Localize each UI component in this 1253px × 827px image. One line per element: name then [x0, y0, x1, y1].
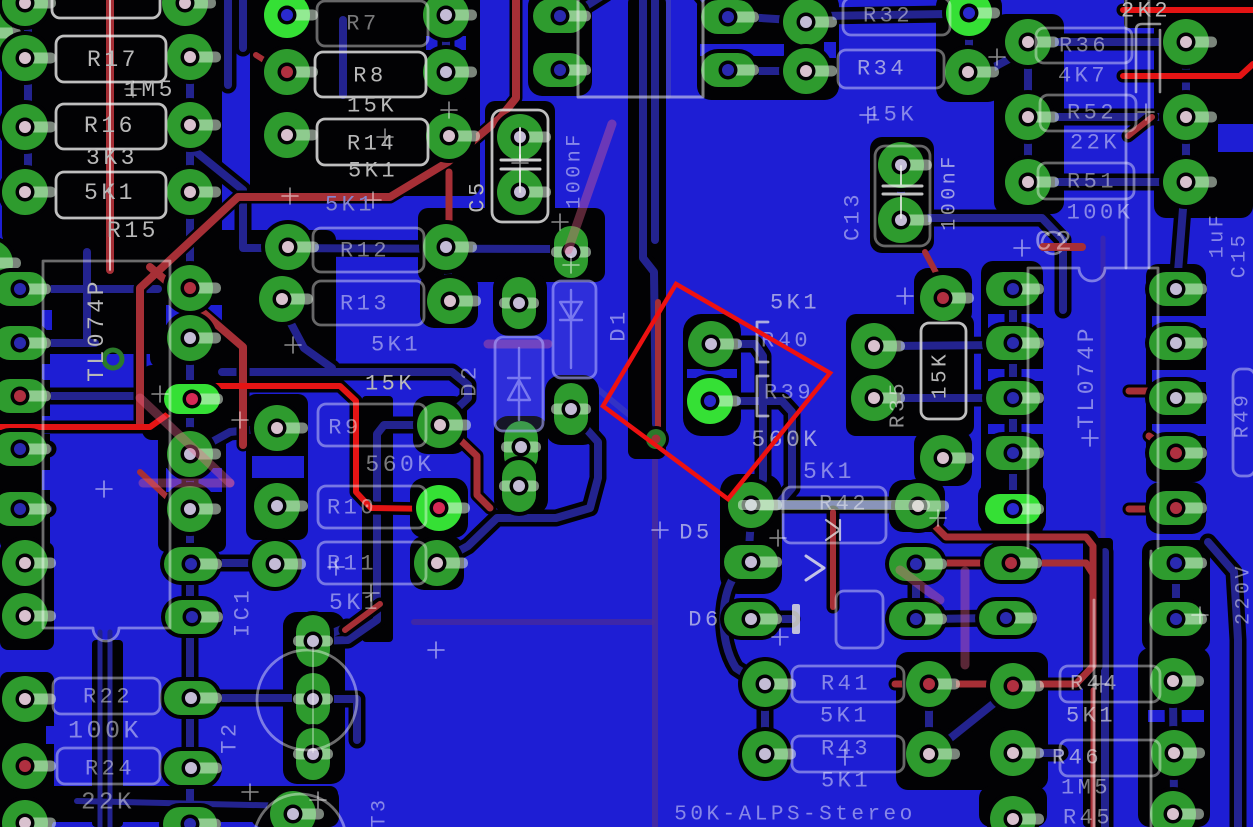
svg-text:1uF: 1uF: [1207, 212, 1230, 259]
svg-text:TL074P: TL074P: [1074, 325, 1100, 429]
svg-text:C15: C15: [1229, 232, 1252, 279]
svg-text:1M5: 1M5: [1061, 776, 1111, 801]
svg-text:5K1: 5K1: [1066, 704, 1116, 729]
svg-text:C2: C2: [1035, 228, 1076, 259]
svg-text:5K1: 5K1: [821, 769, 871, 794]
svg-text:R51: R51: [1067, 170, 1117, 195]
svg-text:15K: 15K: [867, 103, 917, 128]
svg-text:R15: R15: [107, 218, 159, 244]
svg-text:R12: R12: [340, 239, 390, 264]
svg-text:15K: 15K: [347, 94, 397, 119]
svg-text:15K: 15K: [365, 372, 415, 397]
svg-text:R17: R17: [87, 47, 139, 73]
svg-text:IC1: IC1: [231, 587, 256, 637]
svg-text:R43: R43: [821, 737, 871, 762]
svg-text:R24: R24: [85, 757, 135, 782]
svg-text:C5: C5: [466, 179, 491, 212]
svg-text:R36: R36: [1059, 34, 1109, 59]
svg-text:R10: R10: [327, 496, 377, 521]
svg-text:560K: 560K: [365, 452, 434, 478]
svg-text:100nF: 100nF: [939, 153, 962, 231]
svg-text:R14: R14: [347, 132, 397, 157]
svg-text:T2: T2: [218, 720, 243, 753]
svg-text:R8: R8: [353, 64, 386, 89]
svg-text:D6: D6: [688, 608, 721, 633]
svg-text:22K: 22K: [81, 790, 135, 817]
svg-text:5K1: 5K1: [84, 180, 136, 206]
svg-text:15K: 15K: [930, 351, 953, 399]
svg-text:T3: T3: [369, 796, 392, 827]
svg-text:5K1: 5K1: [371, 333, 421, 358]
svg-text:R22: R22: [83, 685, 133, 710]
svg-text:R13: R13: [340, 292, 390, 317]
svg-text:R52: R52: [1067, 101, 1117, 126]
svg-text:5K1: 5K1: [770, 291, 820, 316]
svg-text:1M5: 1M5: [124, 77, 176, 103]
svg-text:R42: R42: [819, 492, 869, 517]
svg-text:R34: R34: [857, 57, 907, 82]
svg-text:R11: R11: [327, 552, 377, 577]
svg-text:D2: D2: [458, 363, 483, 396]
svg-text:4K7: 4K7: [1058, 64, 1108, 89]
svg-text:5K1: 5K1: [329, 590, 381, 616]
svg-text:D1: D1: [607, 308, 632, 341]
svg-text:5K1: 5K1: [325, 193, 375, 218]
svg-text:R32: R32: [863, 4, 913, 29]
svg-text:R46: R46: [1052, 746, 1102, 771]
svg-text:R45: R45: [1063, 806, 1113, 827]
svg-text:100K: 100K: [1067, 201, 1134, 226]
svg-text:R41: R41: [821, 672, 871, 697]
svg-text:220V: 220V: [1233, 563, 1253, 625]
svg-text:R7: R7: [346, 12, 379, 37]
svg-text:100nF: 100nF: [564, 131, 587, 209]
svg-text:22K: 22K: [1070, 131, 1120, 156]
svg-text:R35: R35: [888, 380, 911, 428]
svg-text:R49: R49: [1232, 392, 1253, 439]
svg-text:5K1: 5K1: [803, 459, 855, 485]
svg-text:5K1: 5K1: [348, 159, 398, 184]
svg-text:C13: C13: [841, 191, 866, 241]
svg-text:R16: R16: [84, 113, 136, 139]
svg-text:50K-ALPS-Stereo: 50K-ALPS-Stereo: [674, 804, 916, 827]
svg-text:R9: R9: [328, 416, 361, 441]
svg-text:2K2: 2K2: [1121, 0, 1171, 24]
svg-text:3K3: 3K3: [86, 145, 138, 171]
svg-text:5K1: 5K1: [820, 704, 870, 729]
svg-text:TL074P: TL074P: [84, 278, 110, 382]
svg-text:100K: 100K: [68, 717, 142, 746]
svg-text:D5: D5: [679, 521, 712, 546]
svg-text:R44: R44: [1070, 672, 1120, 697]
